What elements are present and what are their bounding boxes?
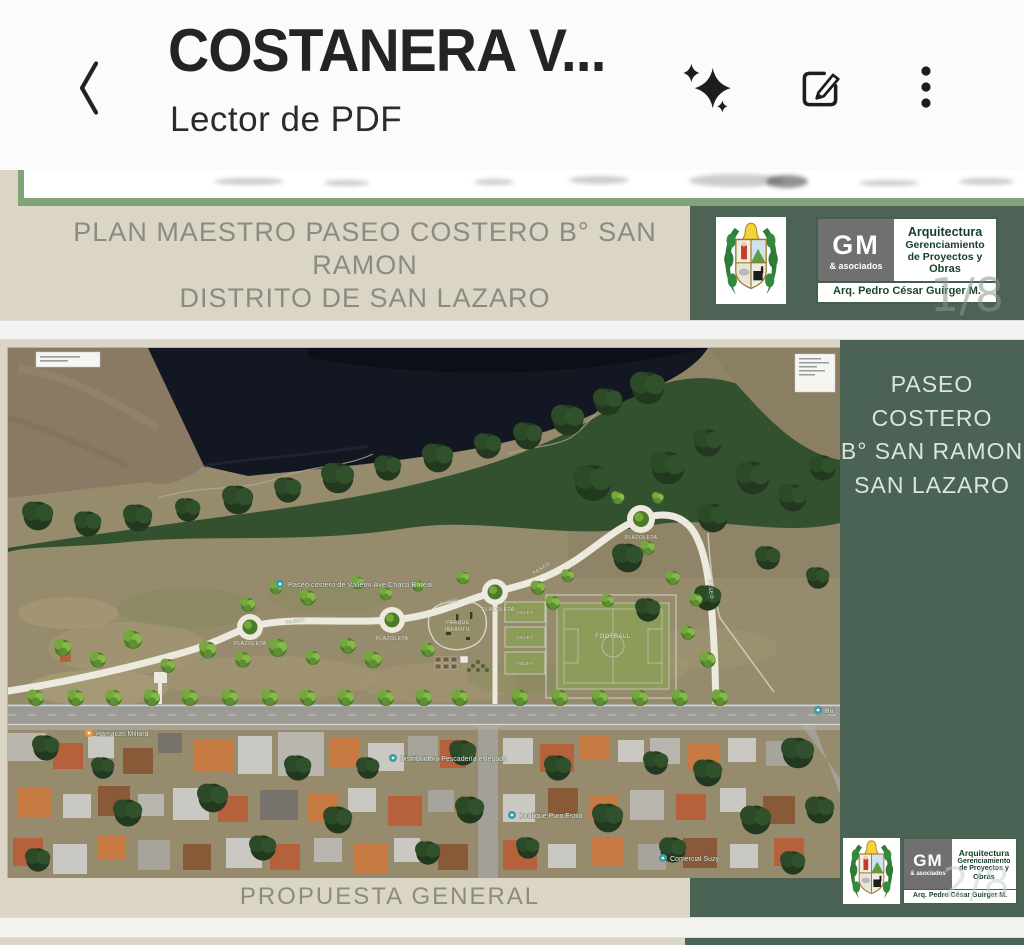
sidebar-line-2: COSTERO [840, 402, 1024, 436]
plazoleta-label: PLAZOLETA [624, 535, 657, 541]
plazoleta-label: PLAZOLETA [375, 636, 408, 642]
map-type-control [36, 352, 100, 367]
poi-truncated-label: Bu [825, 708, 834, 715]
gm-initials: GM [832, 230, 880, 261]
more-vertical-icon [906, 60, 946, 114]
pdf-page-3-green [685, 938, 1024, 945]
page1-framed-area [18, 170, 1024, 206]
voley-label: VOLEY [517, 635, 533, 640]
city-coat-of-arms [716, 217, 786, 304]
sidebar-line-3: B° SAN RAMON [840, 435, 1024, 469]
voley-label: VOLEY [517, 661, 533, 666]
edit-compose-icon [795, 64, 845, 114]
city-coat-of-arms-small [843, 838, 900, 904]
back-button[interactable] [64, 56, 114, 120]
satellite-map: FOOTBALL VOLEY VOLEY VOLEY [8, 348, 840, 878]
page-indicator-2: 2/8 [942, 858, 1010, 907]
firm-line-2: Gerenciamiento [905, 239, 984, 251]
sidebar-title: PASEO COSTERO B° SAN RAMON SAN LAZARO [840, 368, 1024, 502]
satellite-masterplan-image: FOOTBALL VOLEY VOLEY VOLEY [8, 348, 840, 878]
document-title: COSTANERA V... [168, 16, 643, 85]
firm-line-1: Arquitectura [908, 225, 982, 239]
football-label: FOOTBALL [595, 634, 631, 640]
gm-tagline: & asociados [829, 261, 882, 271]
more-options-button[interactable] [896, 56, 956, 118]
parque-label-1: PARQUE [446, 620, 470, 626]
firm-line-1: Arquitectura [959, 848, 1010, 858]
pdf-page-1[interactable]: PLAN MAESTRO PASEO COSTERO B° SAN RAMON … [0, 170, 1024, 320]
firm-line-3: de Proyectos y [908, 251, 983, 263]
heading-line-2: DISTRITO DE SAN LAZARO [20, 282, 710, 315]
page1-green-panel: GM & asociados Arquitectura Gerenciamien… [690, 206, 1024, 320]
edit-button[interactable] [790, 58, 850, 120]
heading-line-1: PLAN MAESTRO PASEO COSTERO B° SAN RAMON [20, 216, 710, 282]
pdf-page-3-beige [0, 938, 685, 945]
sparkles-icon [679, 60, 733, 114]
page2-green-sidebar: PASEO COSTERO B° SAN RAMON SAN LAZARO [840, 340, 1024, 917]
sidebar-line-4: SAN LAZARO [840, 469, 1024, 503]
plazoleta-label: PLAZOLETA [481, 607, 514, 613]
route-label: Paseo costero de Vallemí Ave Chaco Borea… [288, 580, 433, 589]
gm-initials: GM [913, 851, 942, 871]
avenue-road [8, 704, 840, 726]
poi-comercial-label: Comercial Suzy [670, 856, 720, 863]
plazoleta-label: PLAZOLETA [233, 641, 266, 647]
app-name: Lector de PDF [170, 100, 402, 140]
pdf-page-2[interactable]: FOOTBALL VOLEY VOLEY VOLEY [0, 340, 1024, 917]
map-legend-box [795, 354, 835, 392]
page-separator [0, 917, 1024, 938]
page-indicator-1: 1/8 [930, 268, 1004, 322]
poi-hotel-label: Hamacas Milford [96, 731, 149, 738]
poi-boutique-label: Boutique Puro Estilo [519, 813, 583, 820]
page2-caption: PROPUESTA GENERAL [0, 878, 780, 917]
gm-tagline: & asociados [910, 871, 945, 877]
chevron-left-icon [76, 60, 102, 116]
page1-heading: PLAN MAESTRO PASEO COSTERO B° SAN RAMON … [20, 216, 710, 315]
pdf-scroll-area[interactable]: PLAN MAESTRO PASEO COSTERO B° SAN RAMON … [0, 170, 1024, 945]
poi-distribuidora-label: Distribuidora Pescadería el legado [400, 756, 507, 763]
sidebar-line-1: PASEO [840, 368, 1024, 402]
voley-label: VOLEY [517, 610, 533, 615]
page-separator [0, 320, 1024, 340]
ai-assist-button[interactable] [676, 56, 736, 118]
app-bar: COSTANERA V... Lector de PDF [0, 0, 1024, 171]
parque-label-2: INFANTIL [445, 627, 471, 633]
